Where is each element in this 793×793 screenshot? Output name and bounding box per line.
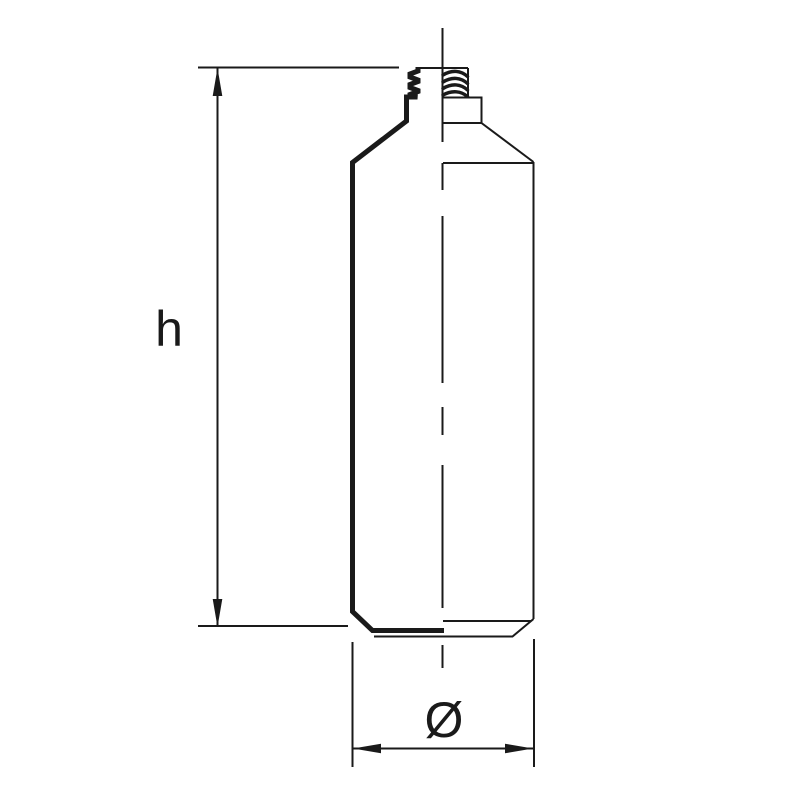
technical-drawing-canvas: h Ø: [0, 0, 793, 793]
neck-ring-right: [443, 98, 482, 124]
thread-coil-1: [443, 71, 468, 76]
diameter-arrow-right-icon: [505, 744, 533, 754]
height-arrow-up-icon: [213, 68, 223, 96]
diameter-label: Ø: [425, 692, 464, 748]
thread-coil-3: [443, 85, 468, 90]
thread-coil-4: [443, 92, 468, 97]
bottle-drawing: h Ø: [0, 0, 793, 793]
height-label: h: [155, 301, 183, 357]
shoulder-right: [482, 123, 534, 162]
bottle-left-profile: [353, 67, 445, 631]
thread-coil-2: [443, 78, 468, 83]
diameter-arrow-left-icon: [353, 744, 381, 754]
height-arrow-down-icon: [213, 599, 223, 627]
